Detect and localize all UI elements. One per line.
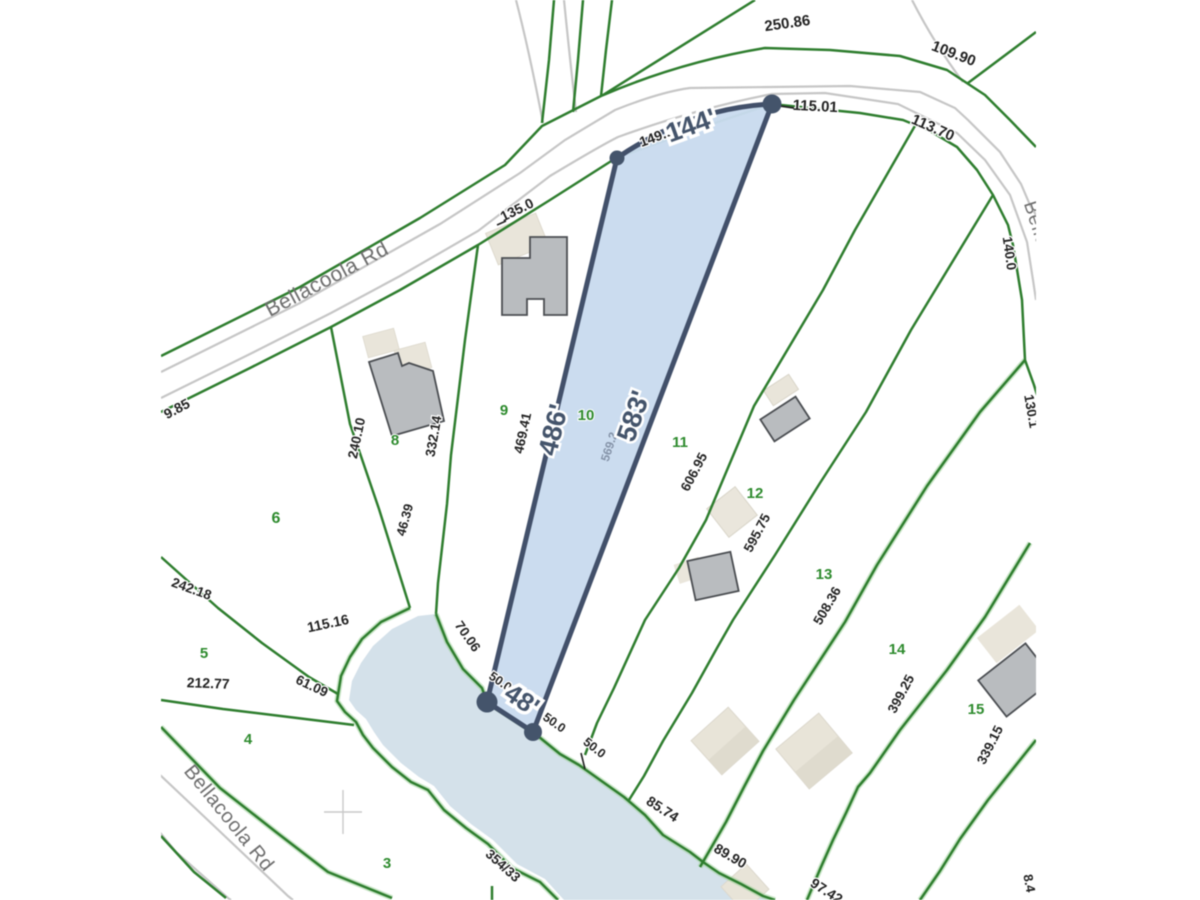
svg-text:8: 8 (391, 432, 399, 449)
svg-text:15: 15 (968, 701, 985, 718)
svg-text:6: 6 (272, 510, 281, 527)
svg-text:212.77: 212.77 (186, 674, 230, 691)
svg-text:12: 12 (747, 485, 764, 502)
svg-text:13: 13 (816, 566, 833, 583)
svg-text:9: 9 (500, 402, 508, 419)
svg-text:115.01: 115.01 (792, 97, 838, 116)
svg-text:4: 4 (244, 731, 253, 748)
svg-text:14: 14 (889, 641, 906, 658)
svg-text:5: 5 (200, 645, 208, 662)
svg-text:11: 11 (672, 434, 688, 451)
svg-text:3: 3 (383, 855, 391, 872)
svg-text:10: 10 (578, 407, 595, 424)
